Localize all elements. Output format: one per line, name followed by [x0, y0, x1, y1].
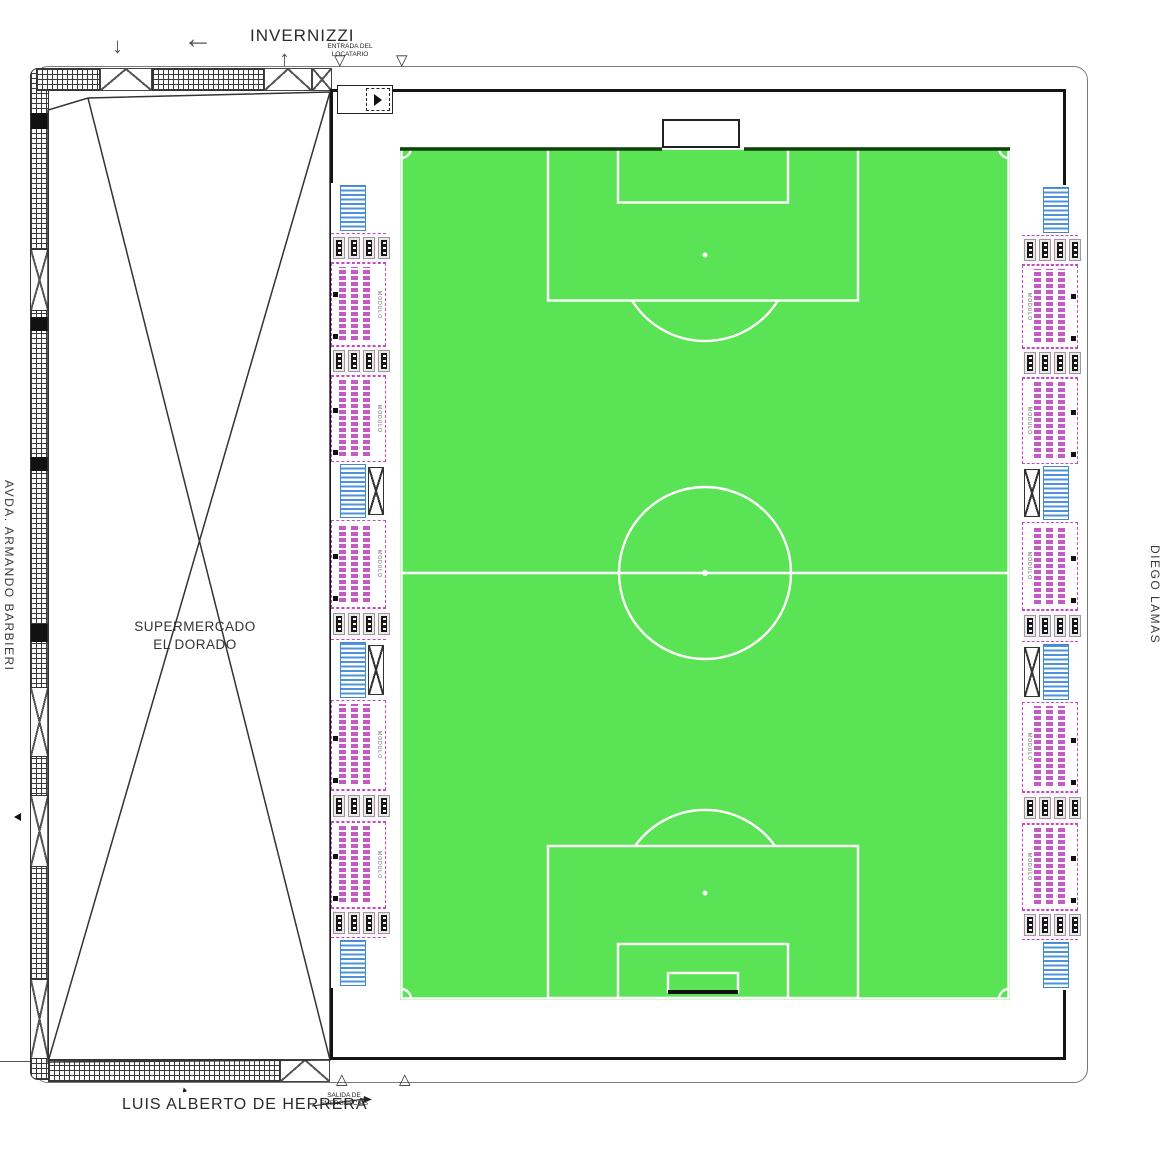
turnstile-gate [1054, 914, 1066, 936]
turnstile-gate [348, 350, 360, 372]
stand-stair-braced [331, 640, 386, 700]
seat-rows [1034, 706, 1070, 788]
stair-icon [1043, 187, 1069, 233]
stair-icon [340, 642, 366, 698]
stand-module: MODULO [331, 263, 386, 346]
stand-stair [1022, 940, 1078, 990]
seat-rows [339, 524, 375, 604]
turnstile-gate [333, 350, 345, 372]
aisle-columns [1071, 529, 1076, 603]
turnstile-gate [1069, 352, 1081, 374]
turnstile-gate [1039, 797, 1051, 819]
stand-module: MODULO [331, 700, 386, 790]
wall-notch-icon [14, 813, 21, 821]
exit-arrow-strike [310, 1096, 372, 1108]
turnstile-gate [363, 613, 375, 635]
booth-door-icon [366, 88, 390, 111]
stand-module: MODULO [331, 376, 386, 462]
module-label: MODULO [376, 291, 382, 319]
entrance-note: ENTRADA DEL LOCATARIO [318, 43, 382, 59]
turnstile-gate [1039, 239, 1051, 261]
stand-stair [331, 183, 386, 233]
turnstile-gate [1039, 352, 1051, 374]
module-label: MODULO [376, 405, 382, 433]
goal-north [662, 119, 740, 148]
turnstile-gate [348, 613, 360, 635]
stand-module: MODULO [1022, 522, 1078, 610]
stand-gate-row [1022, 792, 1078, 824]
entrance-note-line2: LOCATARIO [318, 51, 382, 59]
site-plan: SUPERMERCADO EL DORADO [0, 0, 1170, 1176]
stand-stair-braced [1022, 642, 1078, 702]
stair-icon [1043, 466, 1069, 520]
aisle-columns [1071, 272, 1076, 341]
building-name-line1: SUPERMERCADO [110, 618, 280, 636]
turnstile-gate [363, 912, 375, 934]
turnstile-gate [1024, 615, 1036, 637]
seat-rows [339, 380, 375, 458]
turnstile-gate [378, 613, 390, 635]
cursor-mark-icon: ▴ [181, 1084, 188, 1096]
seat-rows [1034, 382, 1070, 460]
turnstile-gate [333, 613, 345, 635]
turnstile-gate [1024, 352, 1036, 374]
module-label: MODULO [1026, 733, 1032, 761]
module-label: MODULO [1026, 293, 1032, 321]
seat-rows [1034, 828, 1070, 906]
stand-stair-braced [1022, 464, 1078, 522]
aisle-columns [333, 527, 338, 601]
seat-rows [339, 267, 375, 342]
stand-gate-row [331, 908, 386, 938]
turnstile-gate [1054, 352, 1066, 374]
turnstile-gate [333, 912, 345, 934]
turnstile-gate [1069, 239, 1081, 261]
aisle-columns [1071, 831, 1076, 903]
stair-icon [1043, 644, 1069, 700]
turnstile-gate [378, 912, 390, 934]
aisle-columns [333, 383, 338, 455]
turnstile-gate [1024, 797, 1036, 819]
stand-gate-row [331, 608, 386, 640]
stand-stair [1022, 185, 1078, 235]
grandstand-west: MODULOMODULOMODULOMODULOMODULO [331, 183, 386, 988]
turnstile-gate [348, 237, 360, 259]
aisle-columns [333, 707, 338, 783]
turnstile-gate [378, 237, 390, 259]
turnstile-gate [348, 795, 360, 817]
turnstile-gate [1054, 239, 1066, 261]
soccer-pitch [400, 147, 1010, 1000]
module-label: MODULO [376, 731, 382, 759]
turnstile-gate [333, 237, 345, 259]
turnstile-gate [378, 350, 390, 372]
stand-module: MODULO [1022, 824, 1078, 910]
stand-stair [331, 938, 386, 988]
stand-stair-braced [331, 462, 386, 520]
stand-gate-row [1022, 348, 1078, 378]
street-label-diego-lamas: DIEGO LAMAS [1148, 545, 1162, 644]
stand-gate-row [1022, 910, 1078, 940]
arrow-down-icon: ↓ [112, 33, 123, 59]
aisle-columns [1071, 385, 1076, 457]
stand-gate-row [1022, 235, 1078, 265]
turnstile-gate [1024, 239, 1036, 261]
turnstile-gate [363, 795, 375, 817]
turnstile-gate [363, 237, 375, 259]
seat-rows [1034, 526, 1070, 606]
stand-gate-row [331, 790, 386, 822]
triangle-up-icon: △ [336, 1074, 348, 1086]
ticket-booth [337, 85, 393, 114]
cross-brace-icon [1024, 647, 1040, 697]
stair-icon [340, 940, 366, 986]
supermarket-building [34, 85, 334, 1065]
module-label: MODULO [1026, 407, 1032, 435]
seat-rows [1034, 269, 1070, 344]
turnstile-gate [1024, 914, 1036, 936]
turnstile-gate [1069, 914, 1081, 936]
aisle-columns [1071, 709, 1076, 785]
turnstile-gate [1039, 914, 1051, 936]
street-label-barbieri: AVDA. ARMANDO BARBIERI [2, 480, 16, 671]
stand-gate-row [331, 233, 386, 263]
building-label: SUPERMERCADO EL DORADO [110, 618, 280, 654]
turnstile-gate [1069, 615, 1081, 637]
arrow-left-icon: ← [183, 22, 213, 56]
turnstile-gate [1039, 615, 1051, 637]
aisle-columns [333, 270, 338, 339]
triangle-up-icon: △ [399, 1074, 411, 1086]
module-label: MODULO [376, 851, 382, 879]
turnstile-gate [378, 795, 390, 817]
turnstile-gate [1069, 797, 1081, 819]
building-name-line2: EL DORADO [110, 636, 280, 654]
seat-rows [339, 826, 375, 904]
turnstile-gate [333, 795, 345, 817]
stand-gate-row [1022, 610, 1078, 642]
stand-gate-row [331, 346, 386, 376]
triangle-down-icon: ▽ [334, 55, 346, 67]
grandstand-east: MODULOMODULOMODULOMODULOMODULO [1022, 185, 1078, 990]
triangle-down-icon: ▽ [396, 55, 408, 67]
module-label: MODULO [1026, 853, 1032, 881]
module-label: MODULO [376, 550, 382, 578]
stair-icon [340, 464, 366, 518]
stand-module: MODULO [331, 520, 386, 608]
stair-icon [1043, 942, 1069, 988]
aisle-columns [333, 829, 338, 901]
cross-brace-icon [1024, 469, 1040, 517]
turnstile-gate [1054, 615, 1066, 637]
stand-module: MODULO [1022, 265, 1078, 348]
turnstile-gate [363, 350, 375, 372]
stair-icon [340, 185, 366, 231]
stand-module: MODULO [1022, 702, 1078, 792]
entrance-note-line1: ENTRADA DEL [318, 43, 382, 51]
cross-brace-icon [368, 467, 384, 515]
stand-module: MODULO [1022, 378, 1078, 464]
seat-rows [339, 704, 375, 786]
arrow-up-icon: ↑ [279, 46, 290, 72]
module-label: MODULO [1026, 552, 1032, 580]
turnstile-gate [1054, 797, 1066, 819]
turnstile-gate [348, 912, 360, 934]
stand-module: MODULO [331, 822, 386, 908]
cross-brace-icon [368, 645, 384, 695]
